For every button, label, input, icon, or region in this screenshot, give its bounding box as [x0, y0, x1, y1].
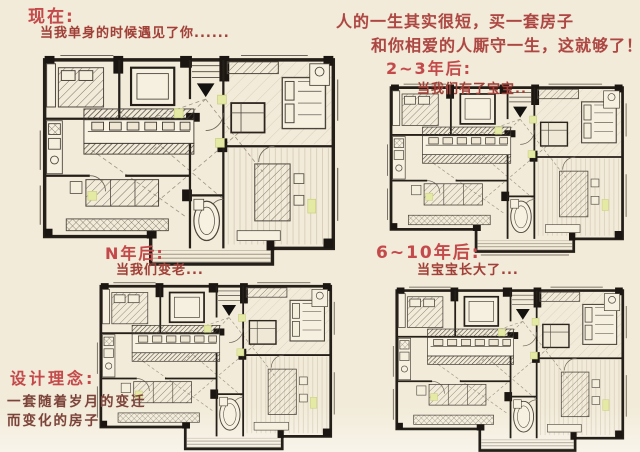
- poster: 现在: 当我单身的时候遇见了你...... 人的一生其实很短，买一套房子 和你相…: [0, 0, 640, 452]
- floorplans-canvas: [0, 0, 640, 452]
- stage-title-now: 现在:: [28, 8, 75, 27]
- floorplan-6-10-years: [393, 287, 626, 452]
- stage-title-6-10-years: 6~10年后:: [376, 244, 481, 263]
- floorplan-2-3-years: [387, 84, 626, 255]
- stage-caption-n-years: 当我们变老...: [116, 264, 204, 278]
- stage-title-2-3-years: 2~3年后:: [386, 60, 472, 78]
- stage-caption-6-10-years: 当宝宝长大了...: [417, 264, 519, 278]
- concept-title: 设计理念:: [10, 370, 95, 388]
- floorplan-now: [40, 55, 337, 268]
- concept-line1: 一套随着岁月的变迁: [7, 395, 147, 410]
- quote-line1: 人的一生其实很短，买一套房子: [336, 13, 574, 31]
- concept-line2: 而变化的房子: [7, 414, 100, 429]
- stage-caption-2-3-years: 当我们有了宝宝..: [417, 83, 527, 97]
- stage-title-n-years: N年后:: [105, 245, 165, 263]
- floorplan-n-years: [97, 283, 334, 452]
- quote-line2: 和你相爱的人厮守一生，这就够了！: [371, 37, 640, 55]
- stage-caption-now: 当我单身的时候遇见了你......: [40, 27, 230, 41]
